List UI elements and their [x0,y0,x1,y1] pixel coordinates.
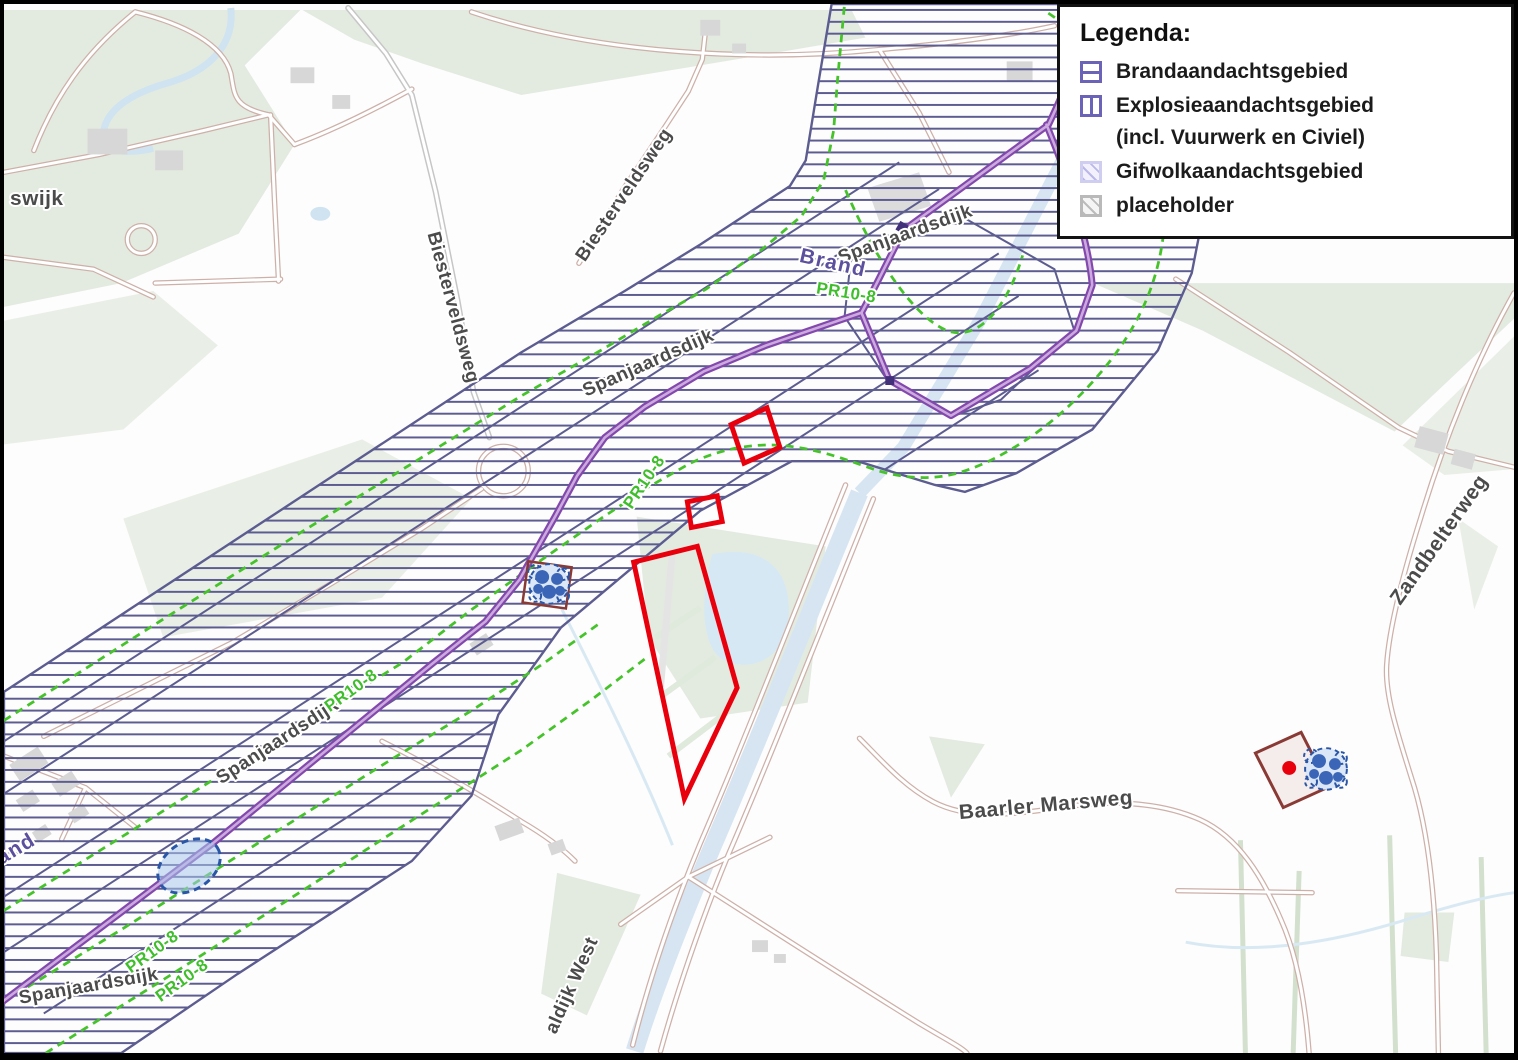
legend-item-label: Brandaandachtsgebied [1116,60,1348,84]
legend-item-brandaandachtsgebied: Brandaandachtsgebied [1080,60,1495,84]
gas-cloud-area-swatch-icon [1080,161,1102,183]
risk-map-figure: swijk Biesterveldsweg Biesterveldsweg Sp… [0,0,1518,1060]
gas-cloud-cluster-icon [1304,748,1347,790]
legend-item-gifwolkaandachtsgebied: Gifwolkaandachtsgebied [1080,160,1495,184]
legend-item-placeholder: placeholder [1080,194,1495,218]
road-label-baarler-marsweg: Baarler Marsweg [958,786,1134,824]
explosion-area-swatch-icon [1080,95,1102,117]
brand-area-swatch-icon [1080,61,1102,83]
legend-item-note: (incl. Vuurwerk en Civiel) [1080,126,1495,150]
placeholder-swatch-icon [1080,195,1102,217]
road-label-biesterveldsweg-1: Biesterveldsweg [424,229,485,385]
legend-title: Legenda: [1080,19,1495,48]
legend-panel: Legenda: Brandaandachtsgebied Explosieaa… [1057,4,1514,239]
place-label: swijk [10,187,64,210]
legend-item-label: placeholder [1116,194,1234,218]
site-dot [1282,761,1296,775]
legend-item-explosieaandachtsgebied: Explosieaandachtsgebied [1080,94,1495,118]
site-marker-right [1255,732,1347,807]
legend-item-label: Gifwolkaandachtsgebied [1116,160,1363,184]
road-label-biesterveldsweg-2: Biesterveldsweg [571,124,676,265]
legend-item-label: Explosieaandachtsgebied [1116,94,1374,118]
